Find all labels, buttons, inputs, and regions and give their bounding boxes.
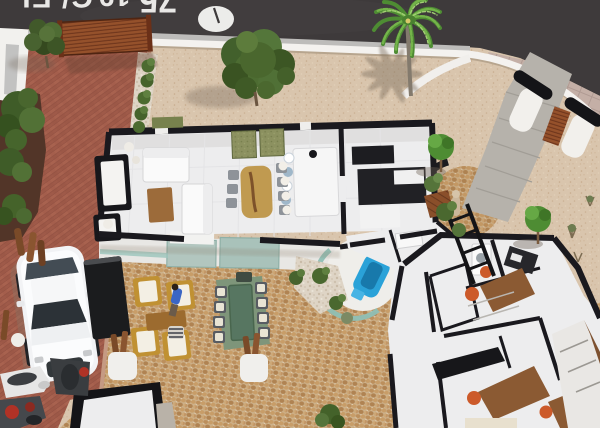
svg-text:75: 75 [139,0,177,19]
svg-text:C/ EL A: C/ EL A [0,0,93,13]
svg-text:19: 19 [99,0,130,12]
